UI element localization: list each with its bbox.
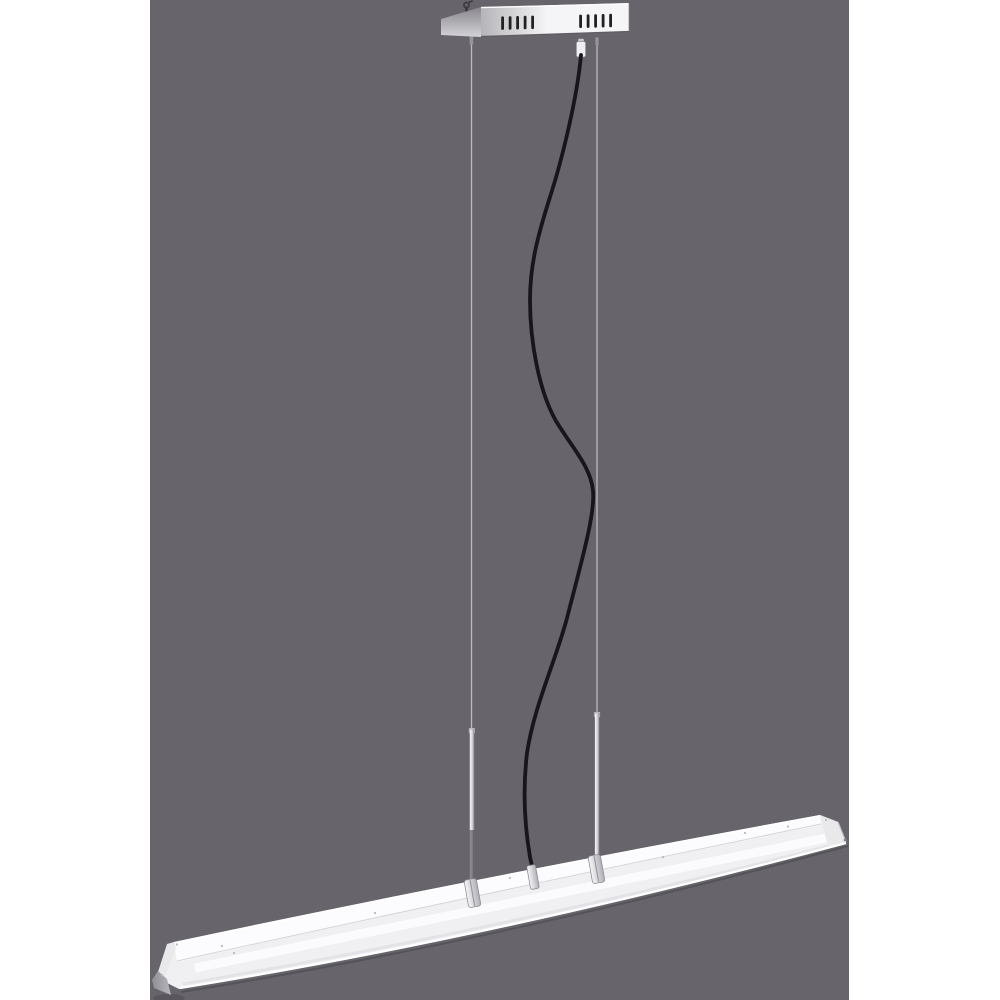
vent-slot — [531, 16, 534, 30]
suspension-rod-left — [469, 728, 475, 883]
vent-slot — [579, 15, 582, 29]
pendant-lamp-photo — [0, 0, 1000, 1000]
wire-anchor-left — [470, 37, 474, 45]
vent-slot — [594, 14, 597, 28]
wire-anchor-right — [595, 38, 598, 46]
suspension-rod-right — [594, 712, 600, 859]
vent-slot — [516, 16, 519, 30]
product-photo-stage — [0, 0, 1000, 1000]
vent-slot — [524, 16, 527, 29]
vent-slot — [587, 14, 590, 28]
vent-slot — [501, 16, 504, 30]
vent-slot — [609, 14, 612, 27]
vent-slot — [602, 14, 605, 28]
vent-slot — [509, 16, 512, 30]
rod-shadow-left — [470, 830, 475, 883]
